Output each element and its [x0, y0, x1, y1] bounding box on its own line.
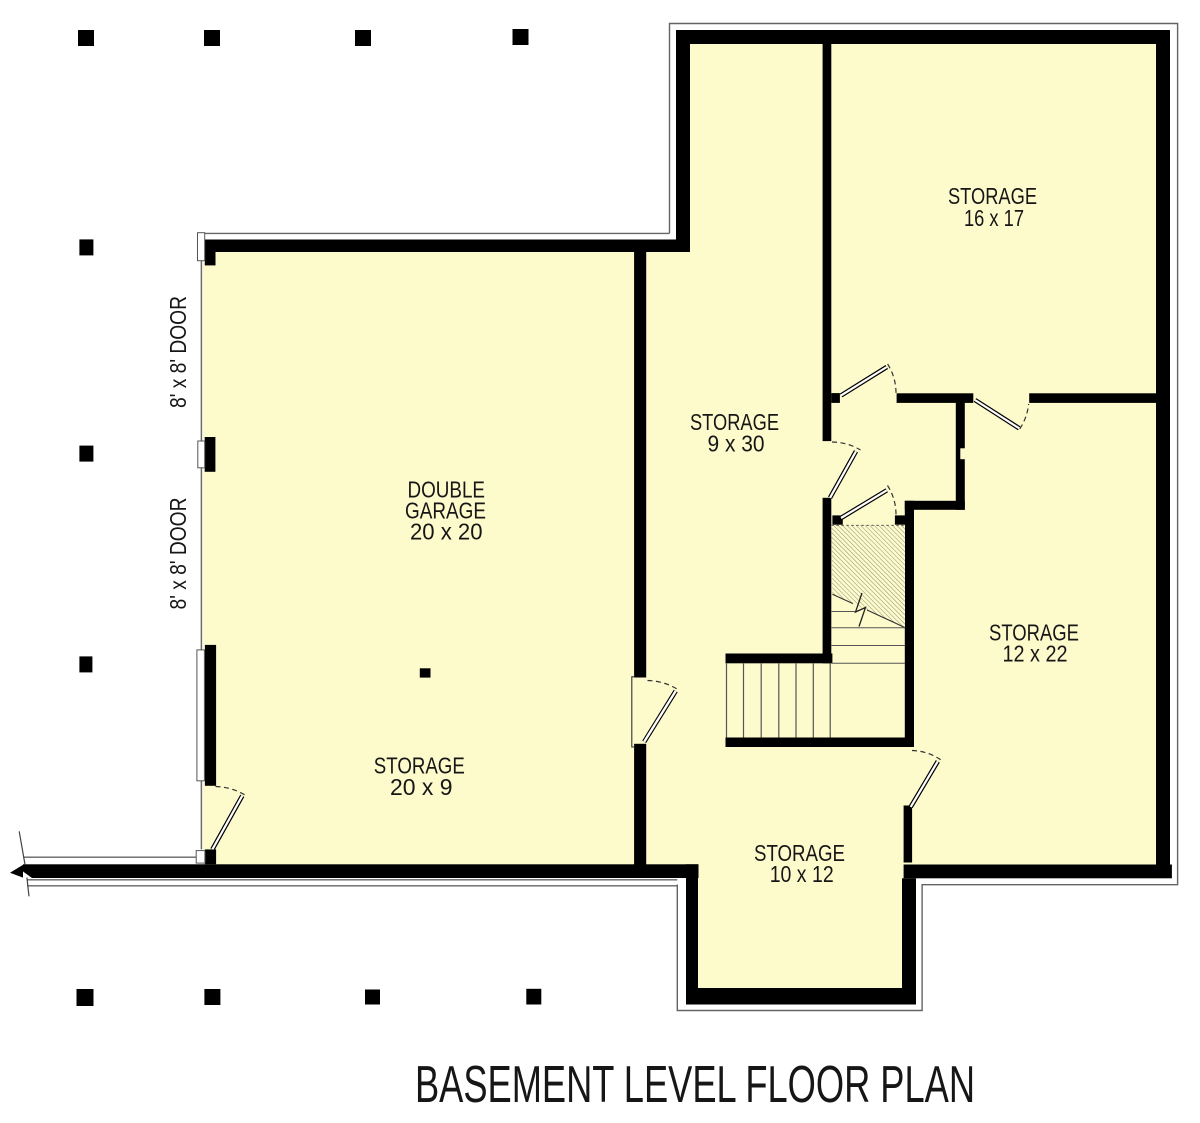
svg-text:9 x 30: 9 x 30: [708, 431, 765, 457]
svg-text:10 x 12: 10 x 12: [770, 861, 834, 887]
svg-text:12 x 22: 12 x 22: [1003, 641, 1068, 667]
svg-text:8' x 8' DOOR: 8' x 8' DOOR: [165, 498, 191, 610]
svg-text:8' x 8' DOOR: 8' x 8' DOOR: [165, 296, 191, 408]
svg-text:20 x 20: 20 x 20: [410, 519, 483, 545]
svg-text:20 x 9: 20 x 9: [390, 774, 453, 800]
svg-text:16 x 17: 16 x 17: [964, 205, 1024, 231]
svg-text:BASEMENT LEVEL FLOOR PLAN: BASEMENT LEVEL FLOOR PLAN: [415, 1056, 975, 1114]
